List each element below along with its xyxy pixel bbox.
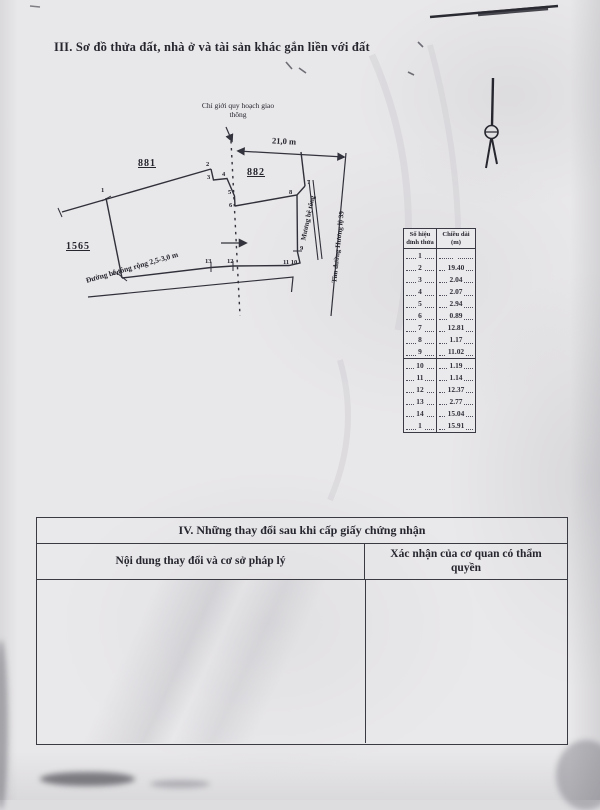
table-row: 132.77 — [404, 395, 476, 407]
dimension-label: 21,0 m — [272, 135, 297, 146]
table-row: 115.91 — [404, 419, 476, 432]
table-row: 42.07 — [404, 285, 476, 297]
table-row: 712.81 — [404, 322, 476, 334]
vertex-label-12: 12 — [227, 258, 234, 265]
section4-header-row: Nội dung thay đổi và cơ sở pháp lý Xác n… — [37, 544, 567, 580]
annotation-arrow — [226, 127, 232, 141]
vertex-table-col1-header: Số hiệu đỉnh thửa — [404, 229, 437, 249]
parcel-882-label: 882 — [247, 167, 265, 178]
table-row: 1212.37 — [404, 383, 476, 395]
vertex-label-3: 3 — [207, 174, 210, 181]
table-row: 219.40 — [404, 261, 476, 273]
section4-col2-cell — [366, 580, 567, 743]
vertex-label-9: 9 — [300, 245, 303, 252]
vertex-label-4: 4 — [222, 171, 225, 178]
vertex-ticks — [58, 196, 302, 281]
section4-title: IV. Những thay đổi sau khi cấp giấy chứn… — [37, 518, 567, 544]
vertex-label-8: 8 — [289, 189, 292, 196]
planning-boundary-dotted-line — [231, 141, 240, 316]
vertex-length-table: Số hiệu đỉnh thửa Chiều dài (m) 1 219.40… — [403, 228, 476, 433]
section4-col1-header: Nội dung thay đổi và cơ sở pháp lý — [37, 544, 365, 579]
table-row: 1 — [404, 249, 476, 262]
vertex-label-2: 2 — [206, 161, 209, 168]
section4-col1-cell — [37, 580, 366, 743]
vertex-label-1: 1 — [101, 187, 104, 194]
table-row: 32.04 — [404, 273, 476, 285]
vertex-label-7: 7 — [307, 179, 310, 186]
section4-empty-row — [37, 580, 567, 743]
scan-streak — [37, 580, 365, 743]
table-row: 60.89 — [404, 310, 476, 322]
table-row: 52.94 — [404, 298, 476, 310]
vertex-table-col2-header: Chiều dài (m) — [437, 229, 476, 249]
vertex-label-13: 13 — [205, 258, 212, 265]
scanned-land-certificate-page: III. Sơ đồ thửa đất, nhà ở và tài sản kh… — [0, 0, 600, 800]
vertex-label-14: 14 — [112, 270, 119, 277]
parcel-1565-label: 1565 — [66, 241, 90, 252]
table-row: 81.17 — [404, 334, 476, 346]
road-edge-line — [88, 277, 293, 297]
section4-col2-header: Xác nhận của cơ quan có thẩm quyền — [365, 544, 567, 579]
scan-artifact-line — [30, 6, 558, 75]
dimension-arrow — [238, 151, 344, 157]
table-row: 111.14 — [404, 371, 476, 383]
vertex-label-5: 5 — [228, 189, 231, 196]
vertex-label-6: 6 — [229, 202, 232, 209]
parcel-881-label: 881 — [138, 158, 156, 169]
planning-boundary-label: Chỉ giới quy hoạch giao thông — [201, 101, 275, 120]
north-arrow-icon — [485, 78, 498, 168]
section4-table: IV. Những thay đổi sau khi cấp giấy chứn… — [36, 517, 568, 745]
table-row: 911.02 — [404, 346, 476, 359]
table-row: 101.19 — [404, 359, 476, 372]
vertex-label-11-10: 11 10 — [283, 259, 297, 266]
table-row: 1415.04 — [404, 407, 476, 419]
parcel-boundary-lines — [62, 152, 305, 278]
